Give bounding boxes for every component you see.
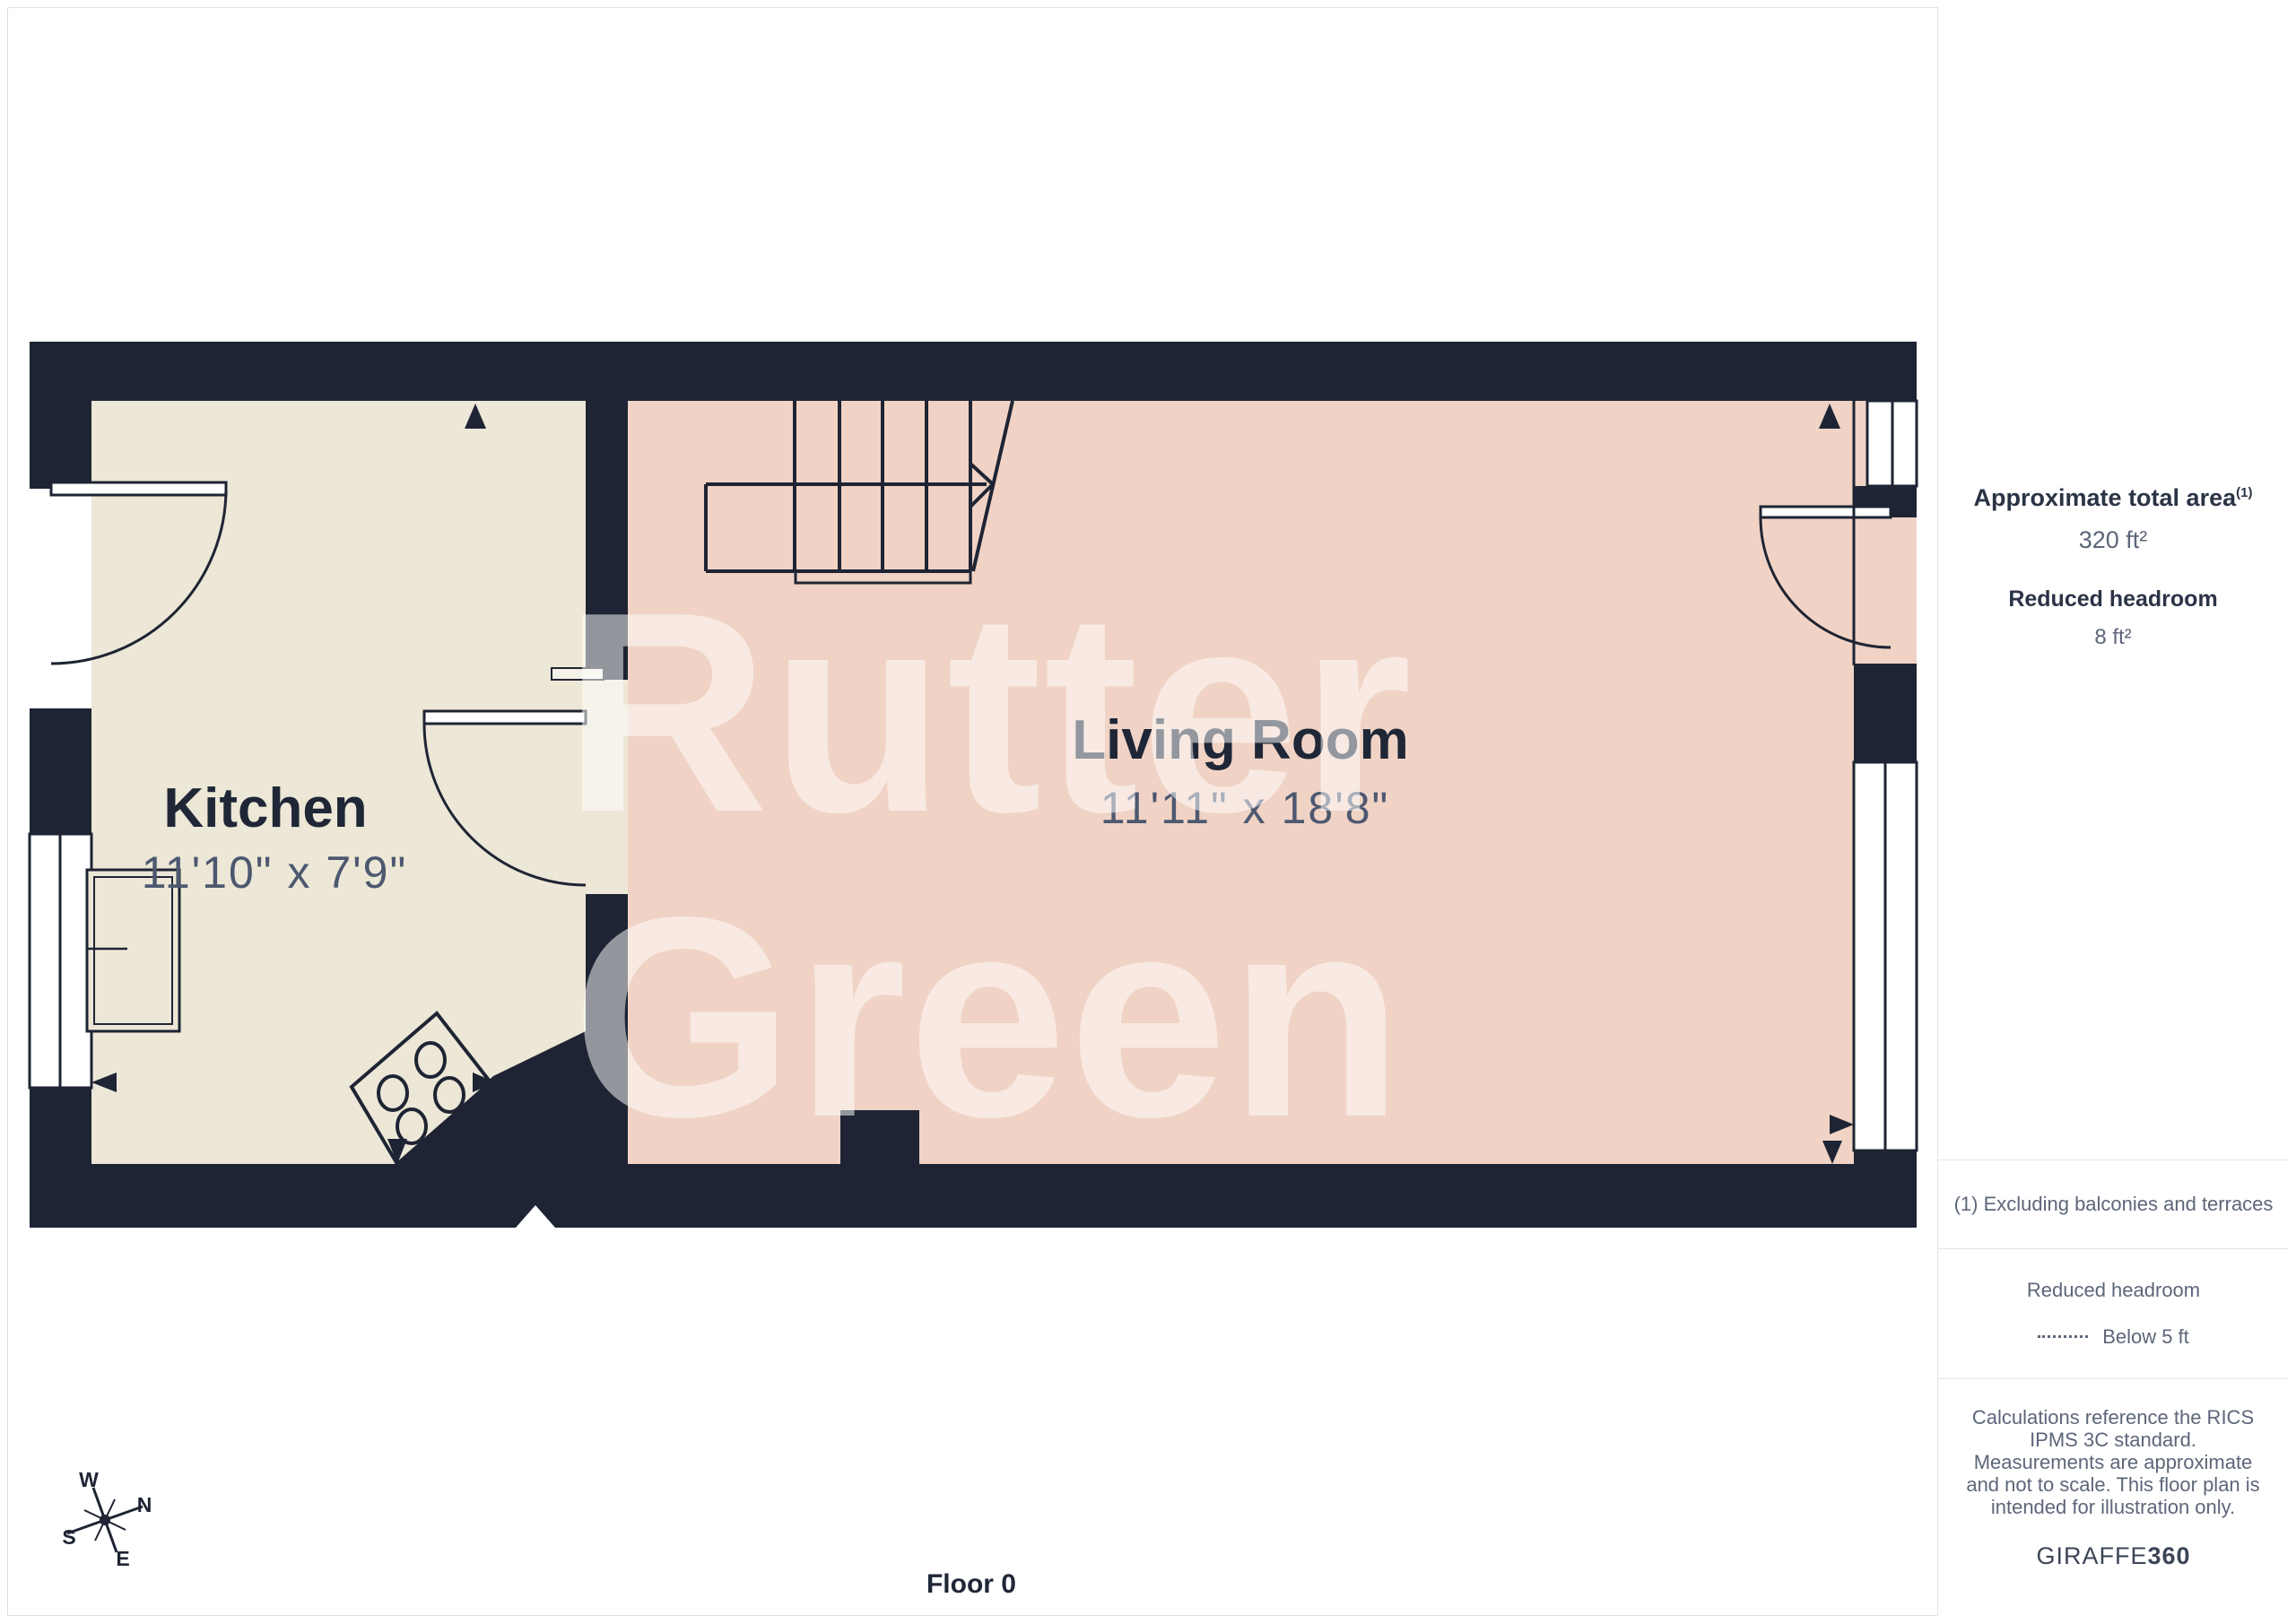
total-area-value: 320 ft² — [1938, 526, 2288, 554]
dotted-line-icon — [2038, 1335, 2088, 1338]
kitchen-label: Kitchen — [104, 777, 427, 840]
compass-n: N — [137, 1493, 152, 1516]
compass-e: E — [116, 1547, 129, 1570]
living-room-dimensions: 11'11" x 18'8" — [994, 782, 1496, 834]
compass-w: W — [79, 1468, 99, 1491]
legend: Reduced headroom Below 5 ft — [1938, 1248, 2289, 1378]
brand-suffix: 360 — [2147, 1542, 2190, 1569]
brand-logo: GIRAFFE360 — [1938, 1542, 2289, 1570]
total-area-label: Approximate total area — [1974, 484, 2237, 511]
kitchen-dimensions: 11'10" x 7'9" — [68, 847, 481, 899]
reduced-headroom-marker — [552, 668, 604, 680]
legend-title: Reduced headroom — [2027, 1279, 2200, 1302]
compass-rose: W N S E — [62, 1468, 152, 1570]
total-area-footnote-ref: (1) — [2236, 485, 2252, 500]
brand-name: GIRAFFE — [2036, 1542, 2147, 1569]
area-summary: Approximate total area(1) 320 ft² Reduce… — [1938, 484, 2288, 650]
chimney-breast — [840, 1110, 919, 1164]
disclaimer-text: Calculations reference the RICS IPMS 3C … — [1964, 1406, 2262, 1518]
legend-item-label: Below 5 ft — [2102, 1325, 2189, 1349]
floor-label: Floor 0 — [882, 1569, 1061, 1600]
reduced-headroom-heading: Reduced headroom — [1938, 586, 2288, 612]
total-area-heading: Approximate total area(1) — [1938, 484, 2288, 512]
legend-row: Below 5 ft — [2038, 1325, 2189, 1349]
reduced-headroom-value: 8 ft² — [1938, 625, 2288, 650]
compass-s: S — [62, 1525, 75, 1549]
kitchen-entry-door-leaf — [51, 482, 226, 495]
living-room-label: Living Room — [1016, 708, 1465, 772]
kitchen-interior-door-leaf — [424, 711, 586, 724]
footnote: (1) Excluding balconies and terraces — [1938, 1159, 2289, 1248]
living-entry-door-leaf — [1761, 507, 1891, 517]
sidebar-section-divider — [1938, 1378, 2289, 1379]
